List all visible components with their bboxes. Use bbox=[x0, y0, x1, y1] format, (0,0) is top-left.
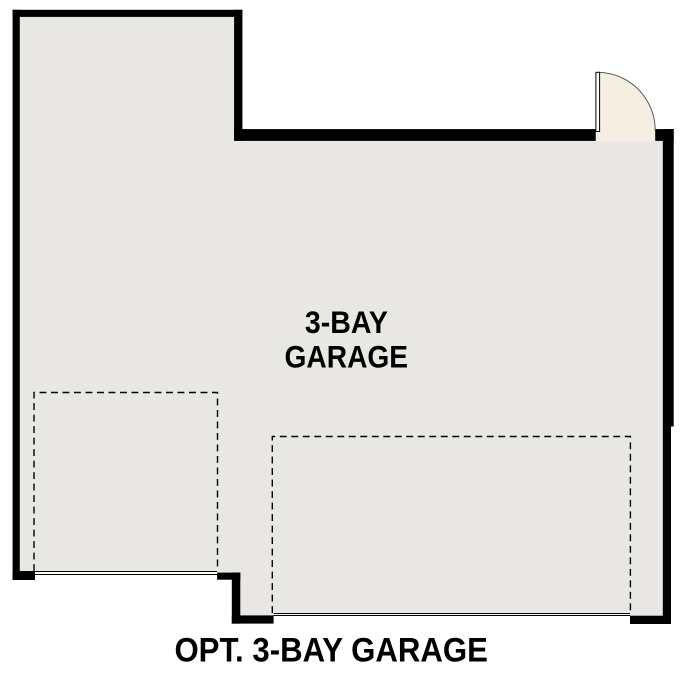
svg-text:OPT. 3-BAY GARAGE: OPT. 3-BAY GARAGE bbox=[174, 632, 488, 670]
svg-text:GARAGE: GARAGE bbox=[285, 340, 409, 375]
svg-text:3-BAY: 3-BAY bbox=[305, 305, 388, 340]
